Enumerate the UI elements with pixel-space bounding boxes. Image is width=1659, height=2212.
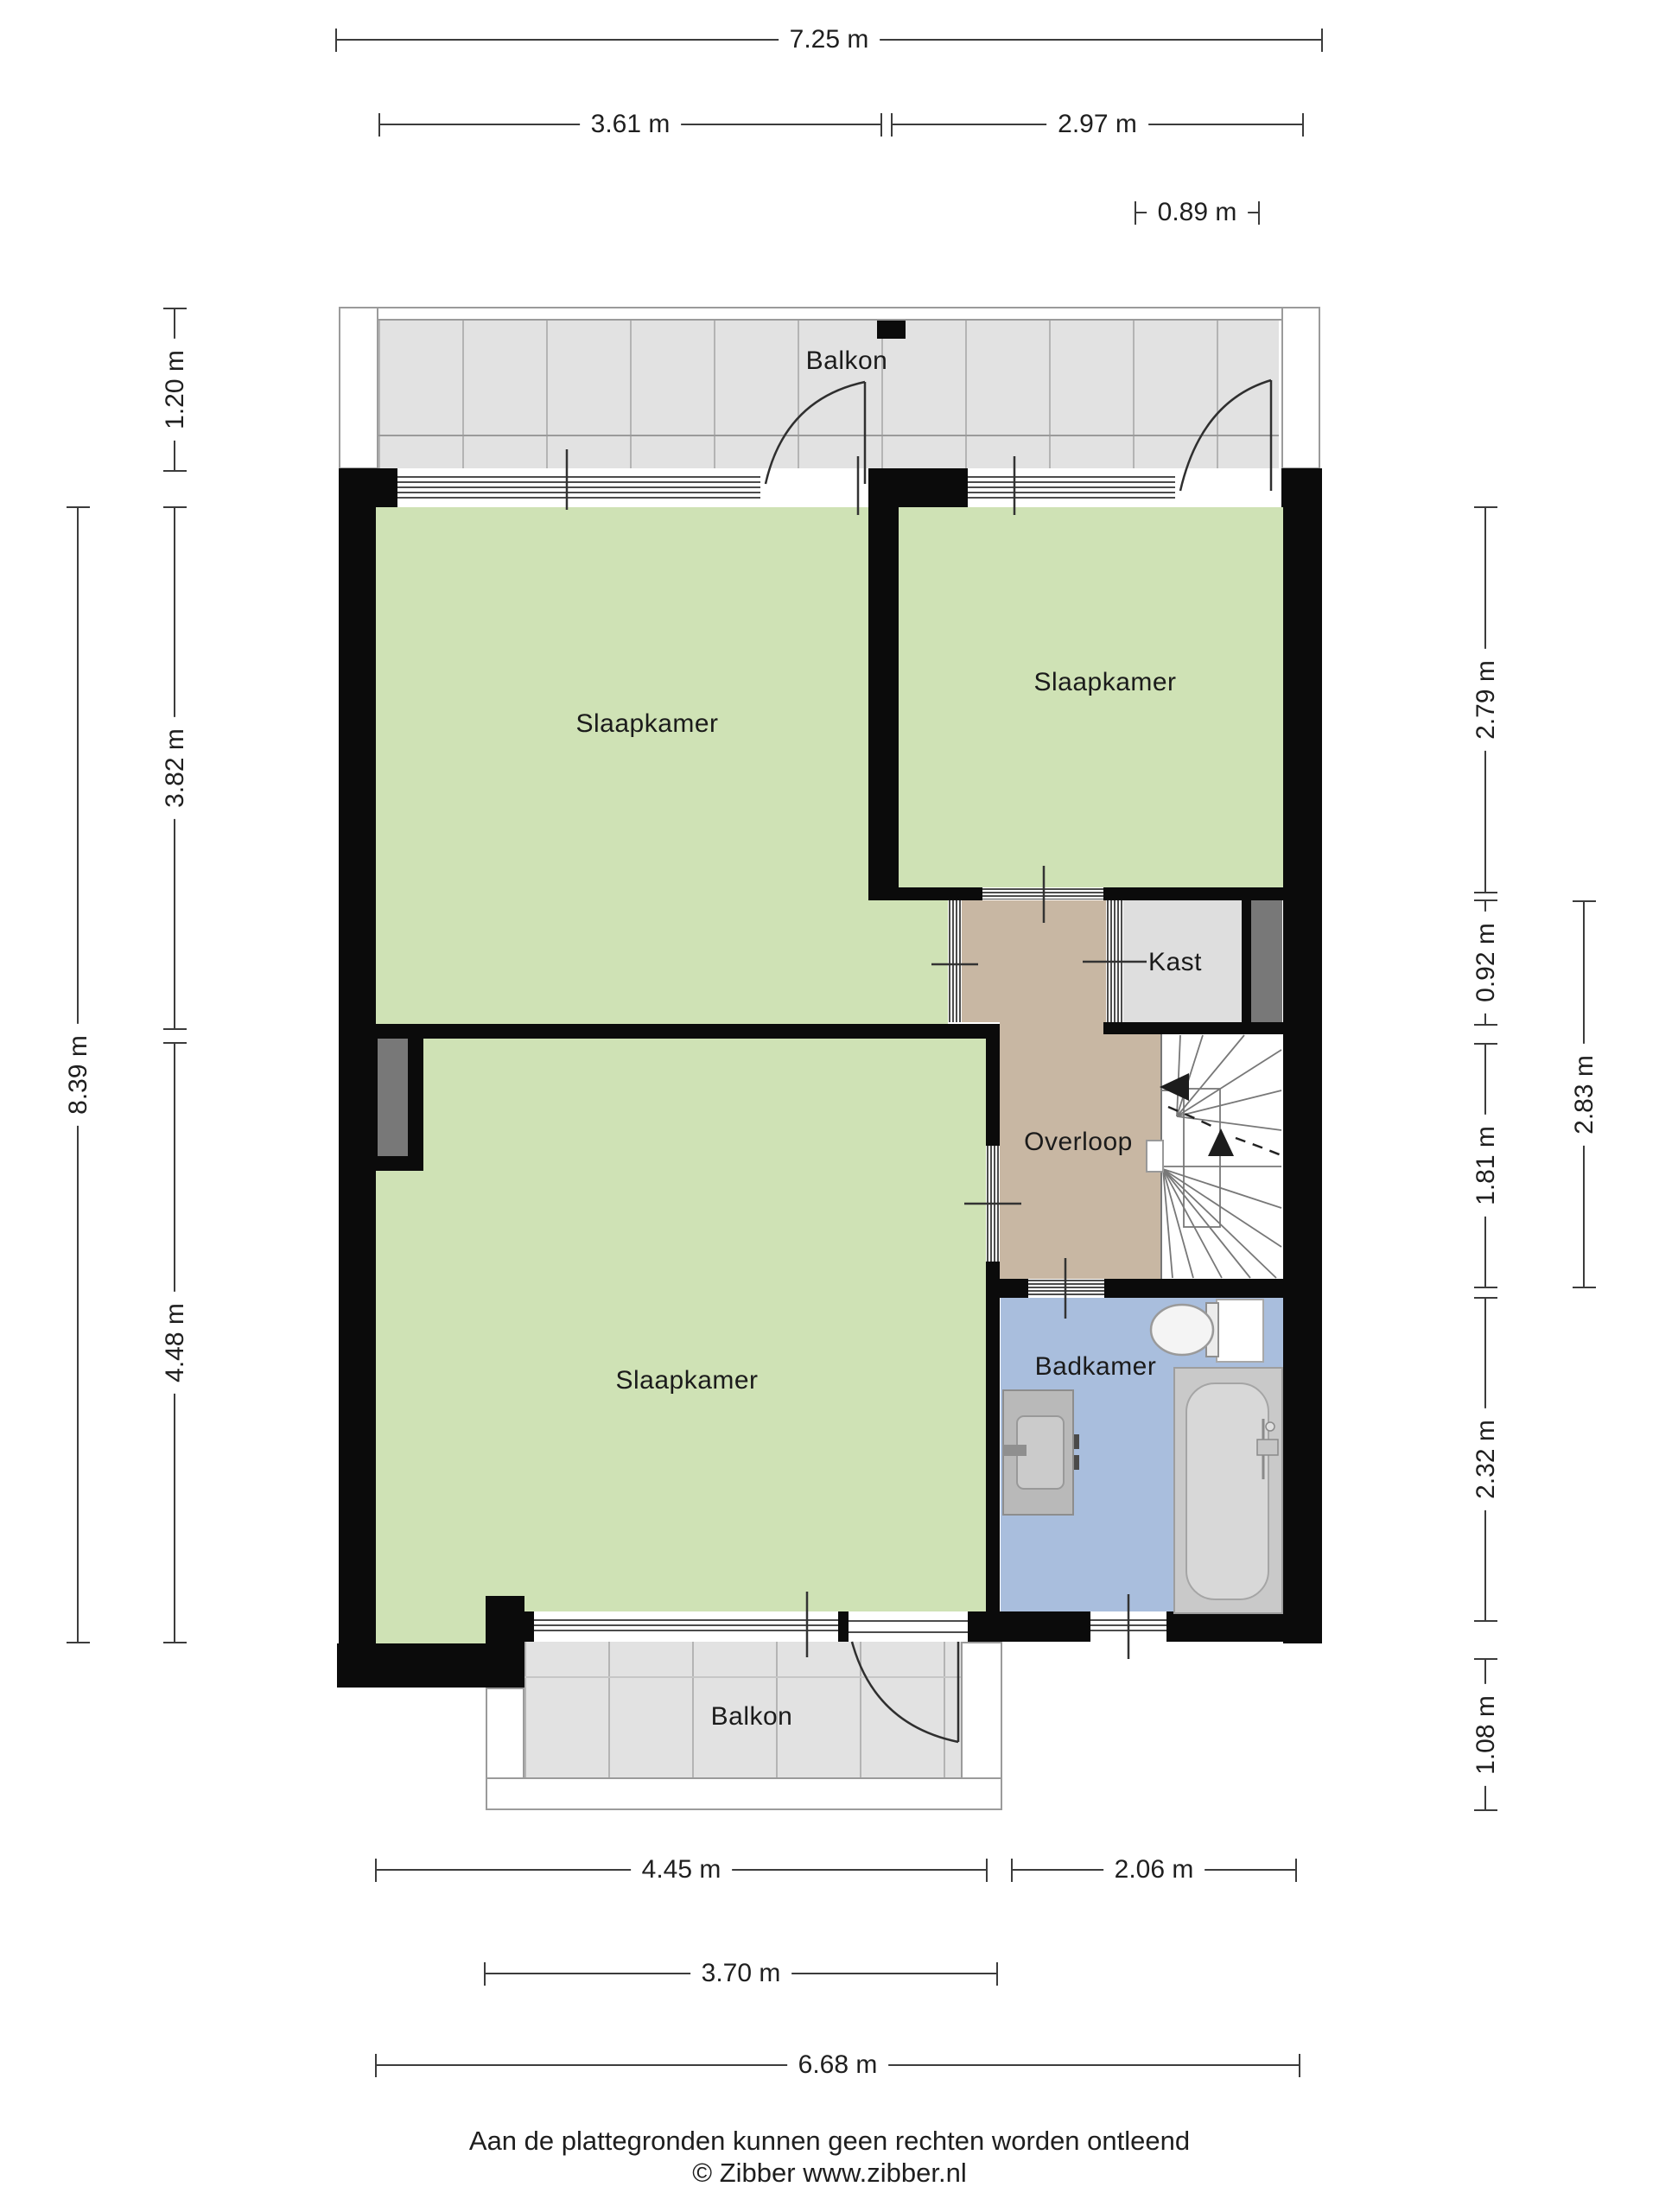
wall-segment (1103, 1022, 1322, 1034)
balcony-floor (378, 321, 1279, 468)
wall-segment (986, 1298, 1000, 1611)
room-label-balkon-bottom: Balkon (711, 1702, 793, 1732)
wall-segment (986, 1262, 1000, 1281)
room-slaapkamer-bottom-ext (374, 1611, 486, 1643)
dimension-line: 2.32 m (1484, 1298, 1486, 1621)
dimension-line: 1.81 m (1484, 1044, 1486, 1287)
dimension-line: 2.79 m (1484, 507, 1486, 893)
room-slaapkamer-left (374, 507, 868, 1026)
room-label-slaapkamer-bottom: Slaapkamer (615, 1366, 758, 1395)
wall-segment (1104, 1279, 1322, 1298)
dimension-line: 1.20 m (174, 308, 175, 471)
wall-segment (486, 1596, 524, 1648)
balcony-frame (486, 1777, 1002, 1810)
railing-post (877, 321, 906, 339)
window-band (397, 468, 760, 507)
duct-shaft (1251, 900, 1282, 1022)
wall-segment (339, 468, 376, 1688)
dimension-value: 6.68 m (787, 2050, 889, 2081)
dimension-value: 1.81 m (1471, 1115, 1502, 1217)
disclaimer-text: Aan de plattegronden kunnen geen rechten… (469, 2126, 1190, 2157)
wall-segment (1242, 900, 1251, 1022)
dimension-value: 3.82 m (160, 717, 191, 819)
dimension-value: 4.48 m (160, 1292, 191, 1394)
dimension-line: 4.48 m (174, 1043, 175, 1643)
balcony-pier (1281, 307, 1320, 469)
dimension-value: 2.32 m (1471, 1408, 1502, 1510)
room-label-badkamer: Badkamer (1035, 1352, 1157, 1382)
wall-segment (337, 1643, 524, 1688)
dimension-line: 2.06 m (1012, 1869, 1296, 1871)
duct-shaft (378, 1039, 408, 1156)
sink-basin (1016, 1415, 1065, 1490)
room-slaapkamer-bottom (374, 1039, 986, 1611)
door-opening (760, 468, 868, 507)
dimension-line: 1.08 m (1484, 1659, 1486, 1810)
door-opening-band (849, 1611, 968, 1642)
room-label-slaapkamer-right: Slaapkamer (1033, 668, 1176, 697)
wall-segment (1166, 1611, 1322, 1642)
dimension-line: 4.45 m (376, 1869, 987, 1871)
door-opening-band (1028, 1279, 1104, 1298)
door-opening-band (986, 1146, 1000, 1262)
dimension-value: 8.39 m (63, 1024, 94, 1126)
floorplan-canvas: Balkon Slaapkamer Slaapkamer Kast Overlo… (0, 0, 1659, 2212)
credit-text: © Zibber www.zibber.nl (692, 2158, 966, 2189)
dimension-value: 3.70 m (690, 1958, 792, 1989)
window-band (534, 1611, 838, 1642)
room-label-overloop: Overloop (1024, 1128, 1133, 1157)
dimension-value: 2.79 m (1471, 649, 1502, 751)
dimension-line: 3.82 m (174, 507, 175, 1029)
balcony-pier (339, 307, 378, 469)
dimension-value: 2.06 m (1103, 1854, 1205, 1885)
dimension-value: 1.20 m (160, 339, 191, 441)
wall-segment (838, 1611, 849, 1642)
staircase-area (1160, 1034, 1283, 1279)
wall-segment (868, 505, 899, 900)
room-label-kast: Kast (1148, 948, 1202, 977)
wall-segment (986, 1279, 1028, 1298)
balcony-railing (339, 307, 1320, 321)
door-opening (1175, 468, 1281, 507)
wall-segment (374, 1024, 1000, 1039)
dimension-line: 0.92 m (1484, 900, 1486, 1025)
dimension-value: 4.45 m (631, 1854, 733, 1885)
dimension-value: 1.08 m (1471, 1684, 1502, 1786)
dimension-value: 2.97 m (1046, 109, 1148, 140)
door-opening-band (982, 887, 1103, 900)
dimension-value: 7.25 m (779, 24, 880, 55)
dimension-line: 3.61 m (379, 124, 881, 125)
wall-segment (986, 1039, 1000, 1146)
dimension-line: 2.83 m (1583, 901, 1585, 1287)
room-label-balkon-top: Balkon (806, 346, 888, 376)
dimension-line: 8.39 m (77, 507, 79, 1643)
room-label-slaapkamer-left: Slaapkamer (575, 709, 718, 739)
dimension-value: 2.83 m (1569, 1044, 1600, 1146)
dimension-value: 0.92 m (1471, 912, 1502, 1014)
window-band (1090, 1611, 1166, 1642)
wall-segment (968, 1611, 1090, 1642)
wall-segment (1283, 468, 1322, 1643)
door-opening-band (1106, 900, 1123, 1022)
bathtub (1185, 1382, 1269, 1600)
dimension-line: 6.68 m (376, 2064, 1300, 2066)
dimension-value: 0.89 m (1147, 197, 1249, 228)
room-slaapkamer-left-ext (868, 900, 948, 1026)
dimension-line: 7.25 m (336, 39, 1322, 41)
window-band (968, 468, 1175, 507)
dimension-line: 2.97 m (892, 124, 1303, 125)
door-opening-band (948, 900, 962, 1022)
room-overloop-upper (962, 900, 1106, 1022)
balcony-floor-line (378, 435, 1279, 436)
dimension-value: 3.61 m (580, 109, 682, 140)
balcony-floor-line (524, 1676, 961, 1678)
dimension-line: 3.70 m (485, 1973, 997, 1974)
wall-segment (524, 1611, 534, 1642)
room-slaapkamer-right (899, 507, 1283, 887)
wall-segment (868, 468, 968, 507)
dimension-line: 0.89 m (1135, 212, 1259, 213)
